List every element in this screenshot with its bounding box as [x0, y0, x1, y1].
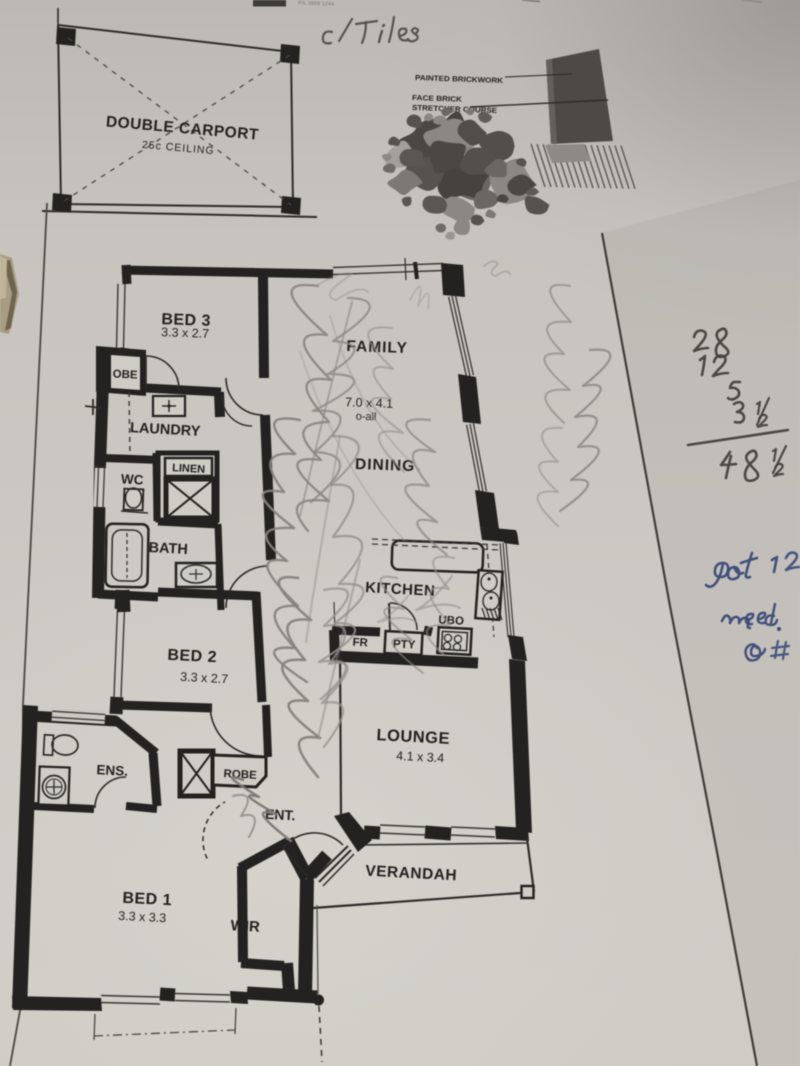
svg-text:BED 1: BED 1: [122, 890, 172, 910]
svg-text:ENT.: ENT.: [265, 806, 296, 824]
svg-text:VERANDAH: VERANDAH: [365, 863, 458, 885]
svg-text:ENS.: ENS.: [96, 762, 128, 779]
svg-text:KITCHEN: KITCHEN: [365, 579, 436, 600]
svg-text:LAUNDRY: LAUNDRY: [130, 420, 201, 440]
svg-text:FR: FR: [352, 637, 369, 650]
svg-text:FAMILY: FAMILY: [346, 338, 408, 357]
svg-text:3.3 x 2.7: 3.3 x 2.7: [180, 670, 229, 686]
svg-text:OBE: OBE: [112, 368, 138, 381]
svg-text:BATH: BATH: [148, 540, 188, 558]
svg-text:BED 2: BED 2: [167, 647, 217, 667]
svg-text:LOUNGE: LOUNGE: [376, 726, 450, 748]
svg-text:LINEN: LINEN: [172, 462, 206, 476]
svg-text:3.3 x 3.3: 3.3 x 3.3: [118, 909, 167, 925]
svg-text:DOUBLE CARPORT: DOUBLE CARPORT: [105, 113, 259, 143]
svg-text:WC: WC: [121, 471, 144, 487]
svg-text:4.1 x 3.4: 4.1 x 3.4: [396, 749, 445, 765]
svg-text:P/L 9869 1244: P/L 9869 1244: [298, 1, 335, 8]
svg-text:3.3 x 2.7: 3.3 x 2.7: [161, 325, 209, 341]
svg-text:WIR: WIR: [230, 917, 260, 936]
svg-text:FACE BRICK: FACE BRICK: [412, 93, 463, 104]
svg-text:25c CEILING: 25c CEILING: [141, 139, 215, 157]
svg-text:PAINTED BRICKWORK: PAINTED BRICKWORK: [415, 73, 504, 85]
